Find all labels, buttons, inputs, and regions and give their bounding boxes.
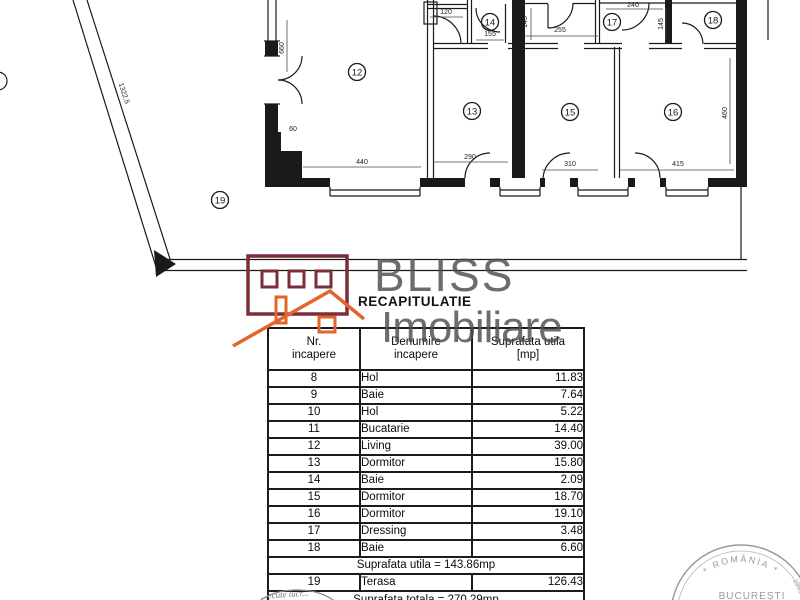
room-nr-cell: 10: [268, 404, 360, 421]
table-row: 14 Baie 2.09: [268, 472, 584, 489]
room-label-16: 16: [665, 104, 682, 121]
room-label-circle-partial: [0, 72, 7, 90]
room-label-19: 19: [212, 192, 229, 209]
room-number: 15: [565, 108, 576, 119]
room-number: 14: [485, 18, 496, 29]
door-arc: [682, 23, 703, 44]
room-name-cell: Baie: [360, 540, 472, 557]
table-header-row: Nr. incapere Denumire incapere Suprafata…: [268, 328, 584, 370]
room-nr-cell: 9: [268, 387, 360, 404]
room-area-cell: 18.70: [472, 489, 584, 506]
subtotal-cell: Suprafata utila = 143.86mp: [268, 557, 584, 574]
header-line: Denumire: [361, 336, 471, 349]
bottom-wall: [296, 178, 747, 187]
room-name-cell: Dressing: [360, 523, 472, 540]
table-row: 9 Baie 7.64: [268, 387, 584, 404]
total-row: Suprafata totala = 270.29mp: [268, 591, 584, 600]
room-area-cell: 5.22: [472, 404, 584, 421]
table-row: 11 Bucatarie 14.40: [268, 421, 584, 438]
room-nr-cell: 15: [268, 489, 360, 506]
dimension-label: 120: [440, 9, 452, 16]
room-name-cell: Dormitor: [360, 506, 472, 523]
scanned-floorplan-page: 1322.5 660 60 440 120 155 145 255 290 31…: [0, 0, 800, 600]
room-area-cell: 11.83: [472, 370, 584, 387]
door-arc: [278, 80, 302, 104]
table-row: 12 Living 39.00: [268, 438, 584, 455]
room-area-cell: 19.10: [472, 506, 584, 523]
room-area-cell: 3.48: [472, 523, 584, 540]
dimension-label: 145: [522, 16, 529, 28]
room-nr-cell: 8: [268, 370, 360, 387]
room-number: 19: [215, 196, 226, 207]
room-number: 16: [668, 108, 679, 119]
room-name-cell: Living: [360, 438, 472, 455]
terrace-edge-line: [87, 0, 170, 259]
room-nr-cell: 14: [268, 472, 360, 489]
header-line: Suprafata utila: [473, 336, 583, 349]
dimension-label: 155: [484, 31, 496, 38]
room-area-cell: 14.40: [472, 421, 584, 438]
room-name-cell: Dormitor: [360, 455, 472, 472]
header-line: Nr.: [269, 336, 359, 349]
room-nr-cell: 13: [268, 455, 360, 472]
total-cell: Suprafata totala = 270.29mp: [268, 591, 584, 600]
room-nr-cell: 17: [268, 523, 360, 540]
dimension-label: 290: [464, 154, 476, 161]
dimension-label: 145: [658, 18, 665, 30]
room-number: 18: [708, 16, 719, 27]
interior-wall: [433, 44, 736, 49]
room-name-cell: Terasa: [360, 574, 472, 591]
room-area-cell: 7.64: [472, 387, 584, 404]
dimension-label: 60: [289, 126, 297, 133]
dimension-label: 660: [279, 42, 286, 54]
header-line: incapere: [269, 349, 359, 362]
dimension-label: 440: [356, 159, 368, 166]
room-name-cell: Hol: [360, 404, 472, 421]
table-row: 15 Dormitor 18.70: [268, 489, 584, 506]
room-name-cell: Baie: [360, 472, 472, 489]
recap-table: Nr. incapere Denumire incapere Suprafata…: [267, 327, 585, 600]
room-label-13: 13: [464, 103, 481, 120]
room-name-cell: Dormitor: [360, 489, 472, 506]
col-header-suprafata: Suprafata utila [mp]: [472, 328, 584, 370]
room-nr-cell: 16: [268, 506, 360, 523]
dimension-label: 310: [564, 161, 576, 168]
room-nr-cell: 18: [268, 540, 360, 557]
room-label-17: 17: [604, 14, 621, 31]
room-area-cell: 15.80: [472, 455, 584, 472]
dimension-label: 1322.5: [117, 82, 130, 105]
room-area-cell: 6.60: [472, 540, 584, 557]
table-title: RECAPITULATIE: [358, 294, 472, 309]
table-row: 8 Hol 11.83: [268, 370, 584, 387]
door-arc: [635, 153, 660, 178]
table-row: 10 Hol 5.22: [268, 404, 584, 421]
terrace-edge-line: [73, 0, 157, 270]
table-row: 13 Dormitor 15.80: [268, 455, 584, 472]
room-area-cell: 126.43: [472, 574, 584, 591]
table-row: 17 Dressing 3.48: [268, 523, 584, 540]
room-nr-cell: 12: [268, 438, 360, 455]
header-line: [mp]: [473, 349, 583, 362]
table-row: 18 Baie 6.60: [268, 540, 584, 557]
dimension-label: 240: [627, 2, 639, 9]
header-line: incapere: [361, 349, 471, 362]
door-arc: [548, 3, 573, 28]
room-label-18: 18: [705, 12, 722, 29]
room-nr-cell: 19: [268, 574, 360, 591]
room-area-cell: 2.09: [472, 472, 584, 489]
room-label-12: 12: [349, 64, 366, 81]
right-wall: [736, 0, 747, 187]
room-number: 12: [352, 68, 363, 79]
subtotal-row: Suprafata utila = 143.86mp: [268, 557, 584, 574]
room-name-cell: Bucatarie: [360, 421, 472, 438]
room-name-cell: Baie: [360, 387, 472, 404]
window-sill: [330, 187, 708, 196]
col-header-denumire: Denumire incapere: [360, 328, 472, 370]
terasa-row: 19 Terasa 126.43: [268, 574, 584, 591]
room-nr-cell: 11: [268, 421, 360, 438]
table-row: 16 Dormitor 19.10: [268, 506, 584, 523]
recap-table-container: Nr. incapere Denumire incapere Suprafata…: [267, 327, 585, 600]
room-label-14: 14: [482, 14, 499, 31]
room-label-15: 15: [562, 104, 579, 121]
room-area-cell: 39.00: [472, 438, 584, 455]
room-name-cell: Hol: [360, 370, 472, 387]
dimension-label: 255: [554, 27, 566, 34]
room-number: 13: [467, 107, 478, 118]
dimension-labels: 1322.5 660 60 440 120 155 145 255 290 31…: [117, 2, 729, 168]
room-number: 17: [607, 18, 618, 29]
col-header-nr: Nr. incapere: [268, 328, 360, 370]
door-arc: [278, 56, 302, 80]
dimension-label: 415: [672, 161, 684, 168]
dimension-label: 460: [722, 107, 729, 119]
terrace-corner-joint: [154, 250, 176, 277]
